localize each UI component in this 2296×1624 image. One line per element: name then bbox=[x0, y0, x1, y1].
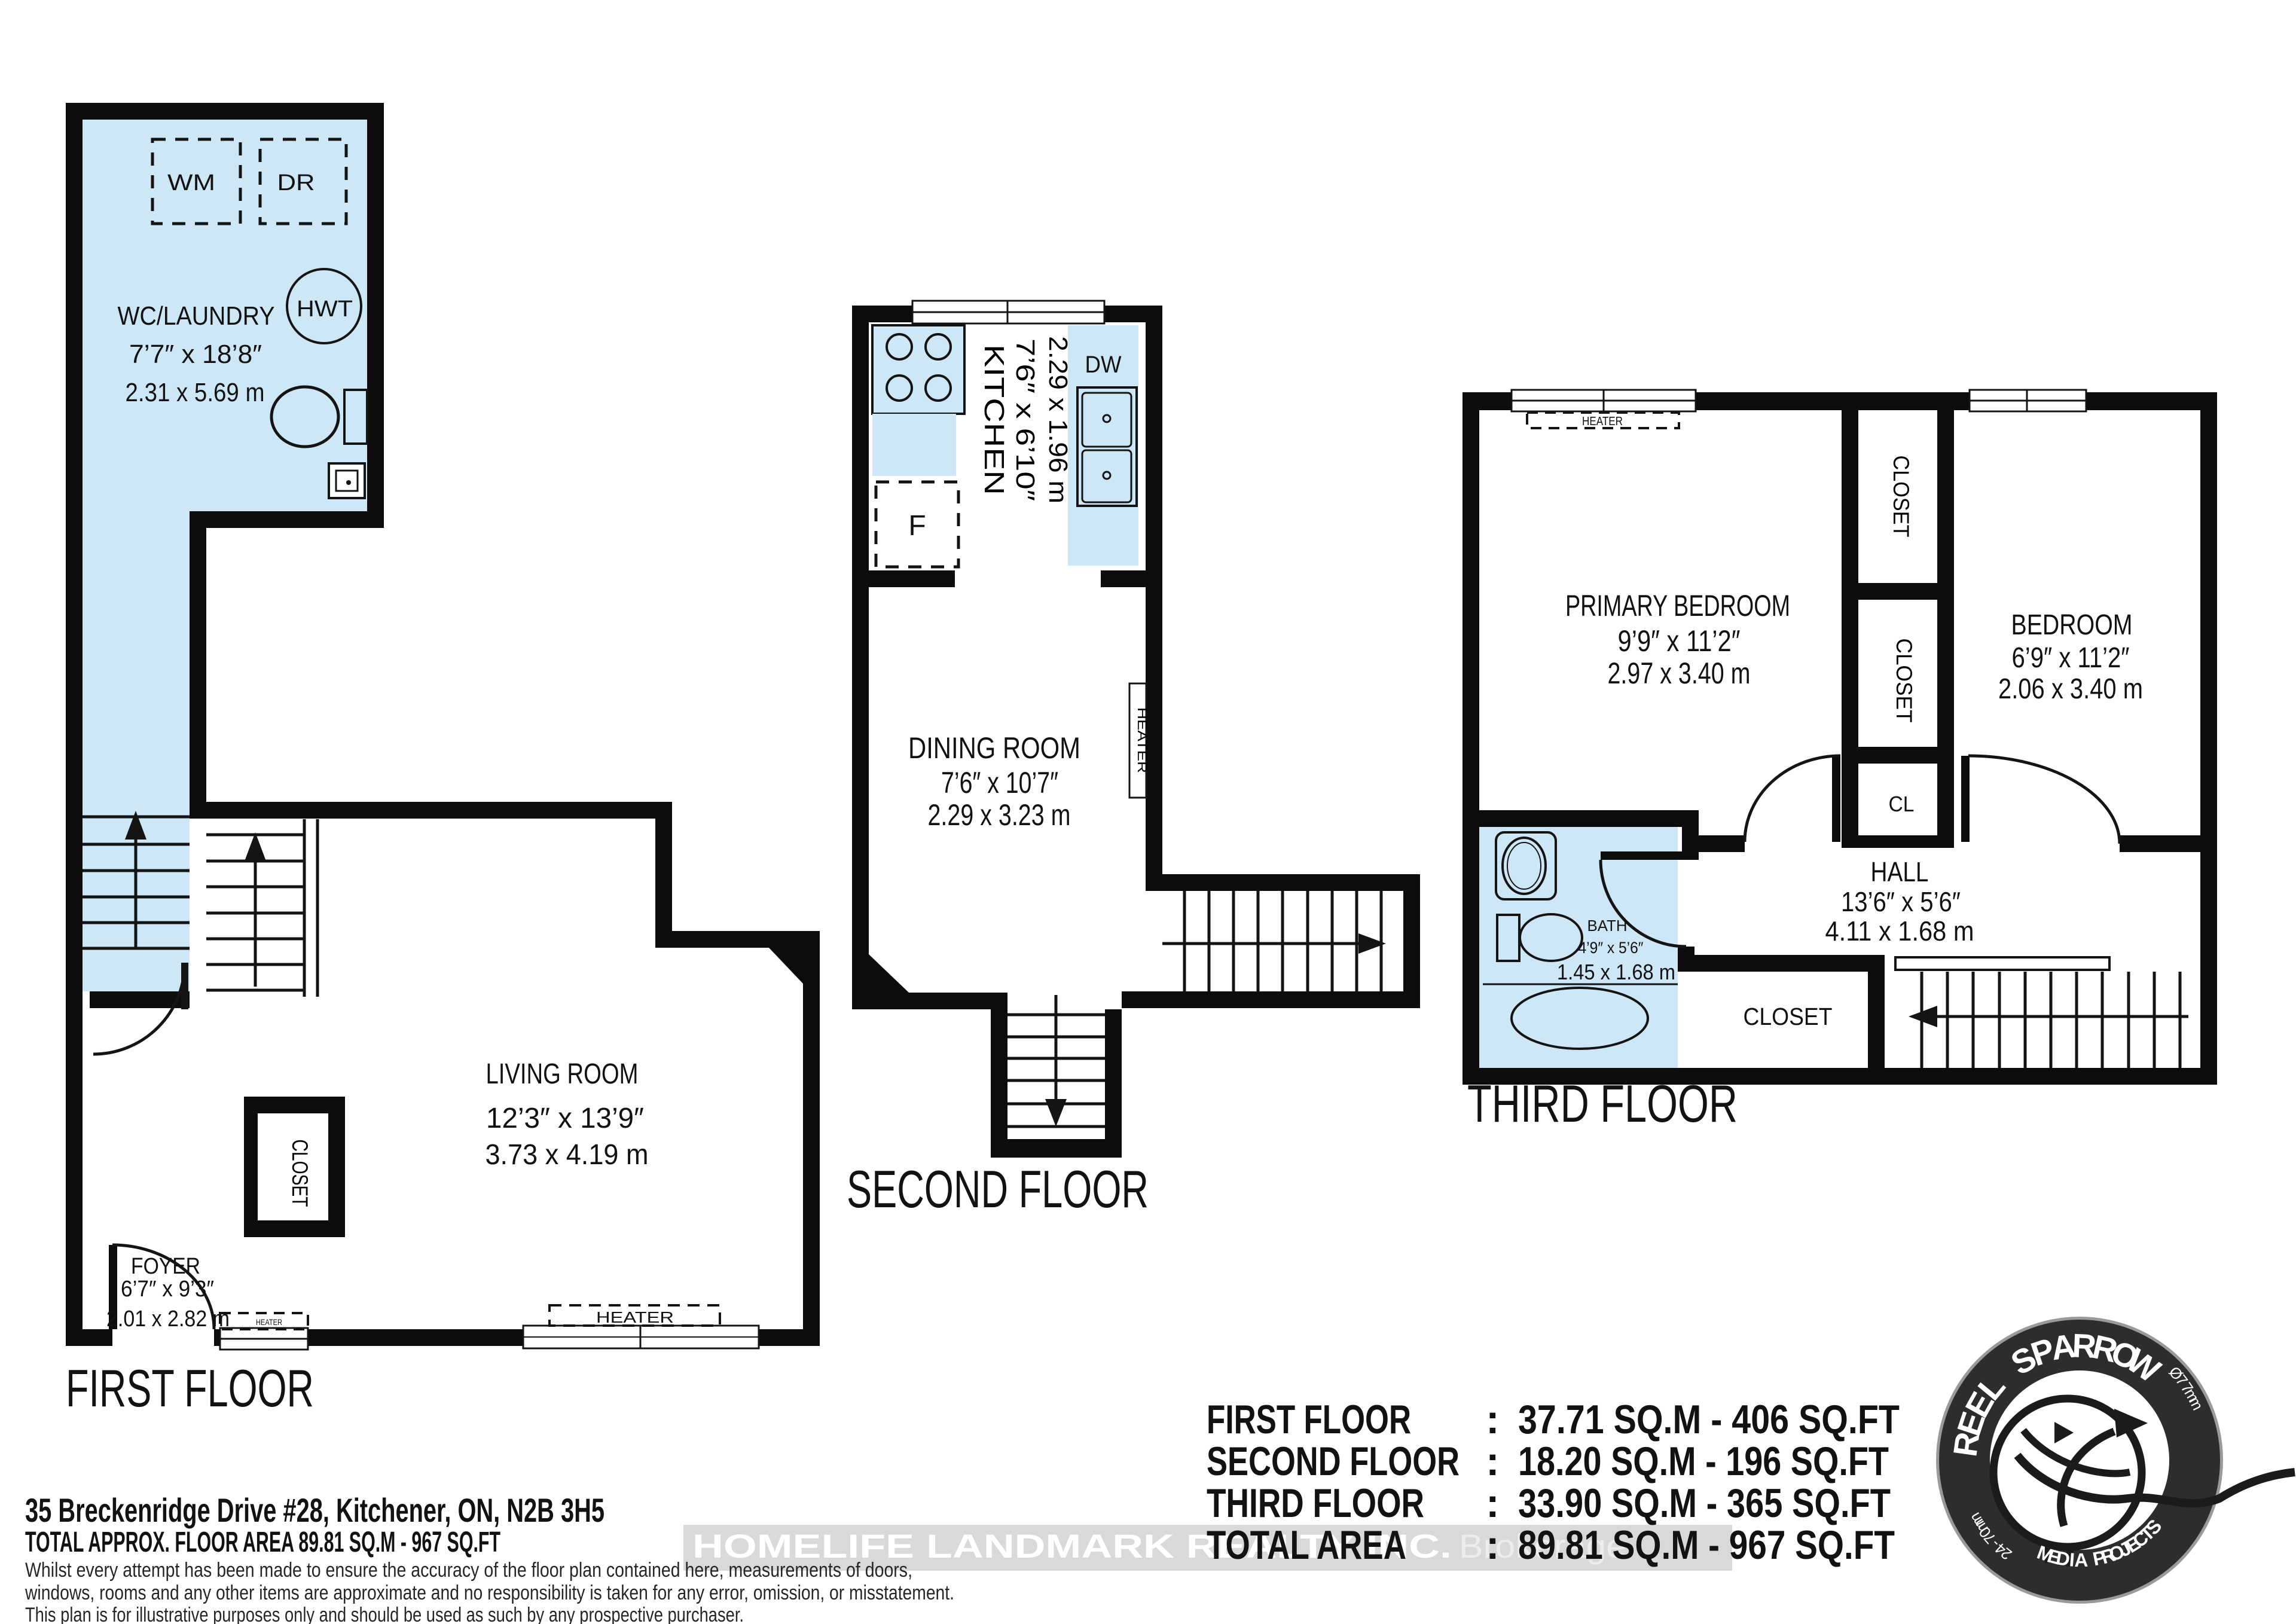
svg-text:TOTAL AREA: TOTAL AREA bbox=[1207, 1522, 1406, 1568]
svg-text:9’9″ x 11’2″: 9’9″ x 11’2″ bbox=[1618, 624, 1741, 658]
svg-text::: : bbox=[1486, 1522, 1500, 1568]
svg-text:HALL: HALL bbox=[1871, 856, 1929, 887]
svg-text:BEDROOM: BEDROOM bbox=[2011, 609, 2133, 641]
svg-text:windows, rooms and any other i: windows, rooms and any other items are a… bbox=[25, 1582, 954, 1604]
svg-text:SECOND FLOOR: SECOND FLOOR bbox=[1207, 1439, 1460, 1484]
svg-text:DINING ROOM: DINING ROOM bbox=[908, 731, 1080, 765]
svg-text:CL: CL bbox=[1889, 792, 1915, 816]
svg-text:7’6″ x 10’7″: 7’6″ x 10’7″ bbox=[941, 766, 1058, 799]
svg-text:2.01 x 2.82 m: 2.01 x 2.82 m bbox=[106, 1306, 230, 1332]
svg-text:7’7″ x 18’8″: 7’7″ x 18’8″ bbox=[129, 340, 262, 369]
svg-text:HEATER: HEATER bbox=[596, 1308, 674, 1326]
svg-text:12’3″ x 13’9″: 12’3″ x 13’9″ bbox=[486, 1103, 644, 1134]
svg-text:SECOND FLOOR: SECOND FLOOR bbox=[847, 1159, 1149, 1219]
svg-text:FOYER: FOYER bbox=[131, 1254, 200, 1279]
svg-text:4.11 x 1.68 m: 4.11 x 1.68 m bbox=[1825, 915, 1974, 947]
svg-text:2.97 x 3.40 m: 2.97 x 3.40 m bbox=[1608, 657, 1751, 690]
svg-text:DW: DW bbox=[1085, 352, 1122, 378]
svg-text:THIRD FLOOR: THIRD FLOOR bbox=[1207, 1480, 1424, 1526]
svg-text:THIRD FLOOR: THIRD FLOOR bbox=[1467, 1074, 1738, 1133]
svg-text:TOTAL APPROX. FLOOR AREA 89.81: TOTAL APPROX. FLOOR AREA 89.81 SQ.M - 96… bbox=[25, 1527, 500, 1558]
svg-text::: : bbox=[1486, 1480, 1500, 1526]
svg-text:4’9″ x 5’6″: 4’9″ x 5’6″ bbox=[1578, 939, 1644, 957]
svg-text:HEATER: HEATER bbox=[1582, 415, 1623, 428]
svg-text:3.73 x 4.19 m: 3.73 x 4.19 m bbox=[486, 1139, 649, 1171]
svg-text:2.06 x 3.40 m: 2.06 x 3.40 m bbox=[1998, 673, 2143, 705]
svg-text:37.71 SQ.M - 406 SQ.FT: 37.71 SQ.M - 406 SQ.FT bbox=[1518, 1397, 1900, 1442]
svg-text:PRIMARY BEDROOM: PRIMARY BEDROOM bbox=[1565, 589, 1790, 622]
svg-text:This plan is for illustrative: This plan is for illustrative purposes o… bbox=[25, 1604, 744, 1624]
svg-text:CLOSET: CLOSET bbox=[1889, 456, 1913, 538]
svg-text:FIRST FLOOR: FIRST FLOOR bbox=[1207, 1397, 1411, 1442]
svg-text:KITCHEN: KITCHEN bbox=[979, 344, 1010, 495]
svg-text:HEATER: HEATER bbox=[1135, 707, 1150, 773]
svg-text:BATH: BATH bbox=[1587, 917, 1628, 935]
svg-text::: : bbox=[1486, 1397, 1500, 1442]
svg-text:LIVING ROOM: LIVING ROOM bbox=[486, 1058, 639, 1090]
svg-text:6’7″ x 9’3″: 6’7″ x 9’3″ bbox=[121, 1277, 214, 1302]
svg-text:13’6″ x 5’6″: 13’6″ x 5’6″ bbox=[1841, 886, 1961, 917]
svg-text:CLOSET: CLOSET bbox=[288, 1140, 312, 1207]
svg-text:6’9″ x 11’2″: 6’9″ x 11’2″ bbox=[2012, 642, 2130, 674]
svg-text:CLOSET: CLOSET bbox=[1744, 1003, 1833, 1030]
svg-text:CLOSET: CLOSET bbox=[1892, 639, 1916, 723]
svg-text:7’6″ x 6’10″: 7’6″ x 6’10″ bbox=[1010, 338, 1040, 501]
svg-text:FIRST FLOOR: FIRST FLOOR bbox=[66, 1359, 314, 1418]
svg-text:2.29 x 1.96 m: 2.29 x 1.96 m bbox=[1043, 336, 1073, 503]
svg-text:F: F bbox=[908, 510, 926, 542]
svg-text:WM: WM bbox=[167, 170, 215, 196]
svg-text:HWT: HWT bbox=[297, 297, 353, 322]
svg-text:Whilst every attempt has been: Whilst every attempt has been made to en… bbox=[25, 1559, 912, 1582]
svg-text:A: A bbox=[2074, 1549, 2089, 1571]
svg-text:18.20 SQ.M - 196 SQ.FT: 18.20 SQ.M - 196 SQ.FT bbox=[1518, 1439, 1889, 1484]
svg-text::: : bbox=[1486, 1439, 1500, 1484]
svg-text:DR: DR bbox=[277, 170, 315, 196]
svg-text:35 Breckenridge Drive #28, Kit: 35 Breckenridge Drive #28, Kitchener, ON… bbox=[25, 1491, 604, 1529]
svg-text:2.31 x 5.69 m: 2.31 x 5.69 m bbox=[126, 378, 265, 407]
svg-text:WC/LAUNDRY: WC/LAUNDRY bbox=[118, 301, 275, 331]
svg-text:1.45 x 1.68 m: 1.45 x 1.68 m bbox=[1557, 960, 1675, 984]
svg-text:89.81 SQ.M - 967 SQ.FT: 89.81 SQ.M - 967 SQ.FT bbox=[1518, 1522, 1895, 1568]
svg-text:33.90 SQ.M - 365 SQ.FT: 33.90 SQ.M - 365 SQ.FT bbox=[1518, 1480, 1891, 1526]
svg-text:2.29 x 3.23 m: 2.29 x 3.23 m bbox=[928, 798, 1071, 832]
svg-text:HEATER: HEATER bbox=[256, 1317, 282, 1327]
